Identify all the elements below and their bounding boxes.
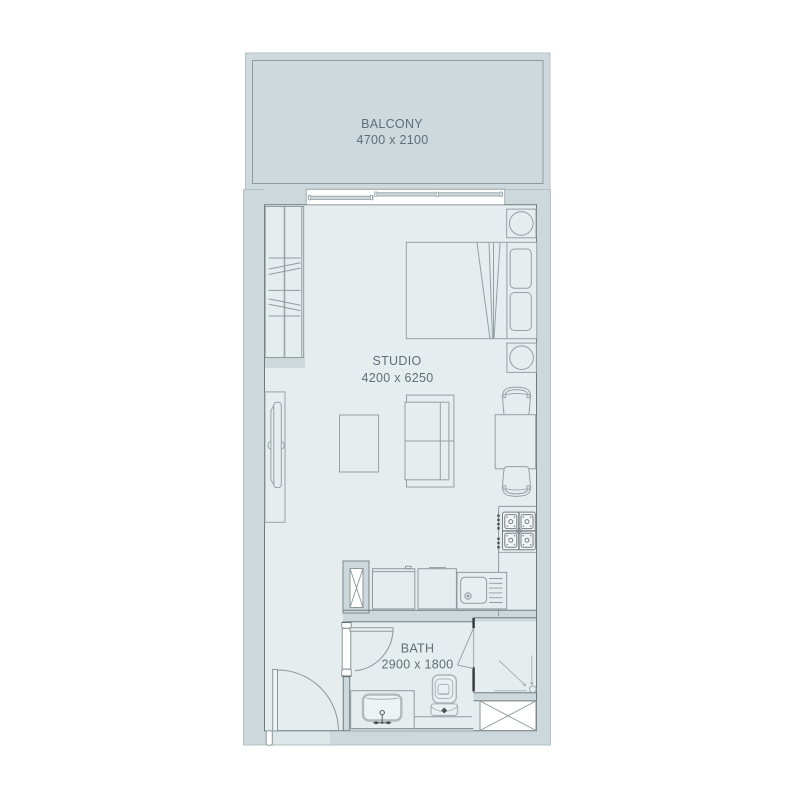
svg-text:2900 x 1800: 2900 x 1800 [381, 658, 453, 672]
svg-text:4200 x 6250: 4200 x 6250 [361, 371, 433, 385]
svg-text:BATH: BATH [401, 642, 435, 656]
svg-text:4700 x 2100: 4700 x 2100 [356, 133, 428, 147]
svg-text:STUDIO: STUDIO [372, 354, 421, 368]
svg-text:BALCONY: BALCONY [361, 117, 423, 131]
